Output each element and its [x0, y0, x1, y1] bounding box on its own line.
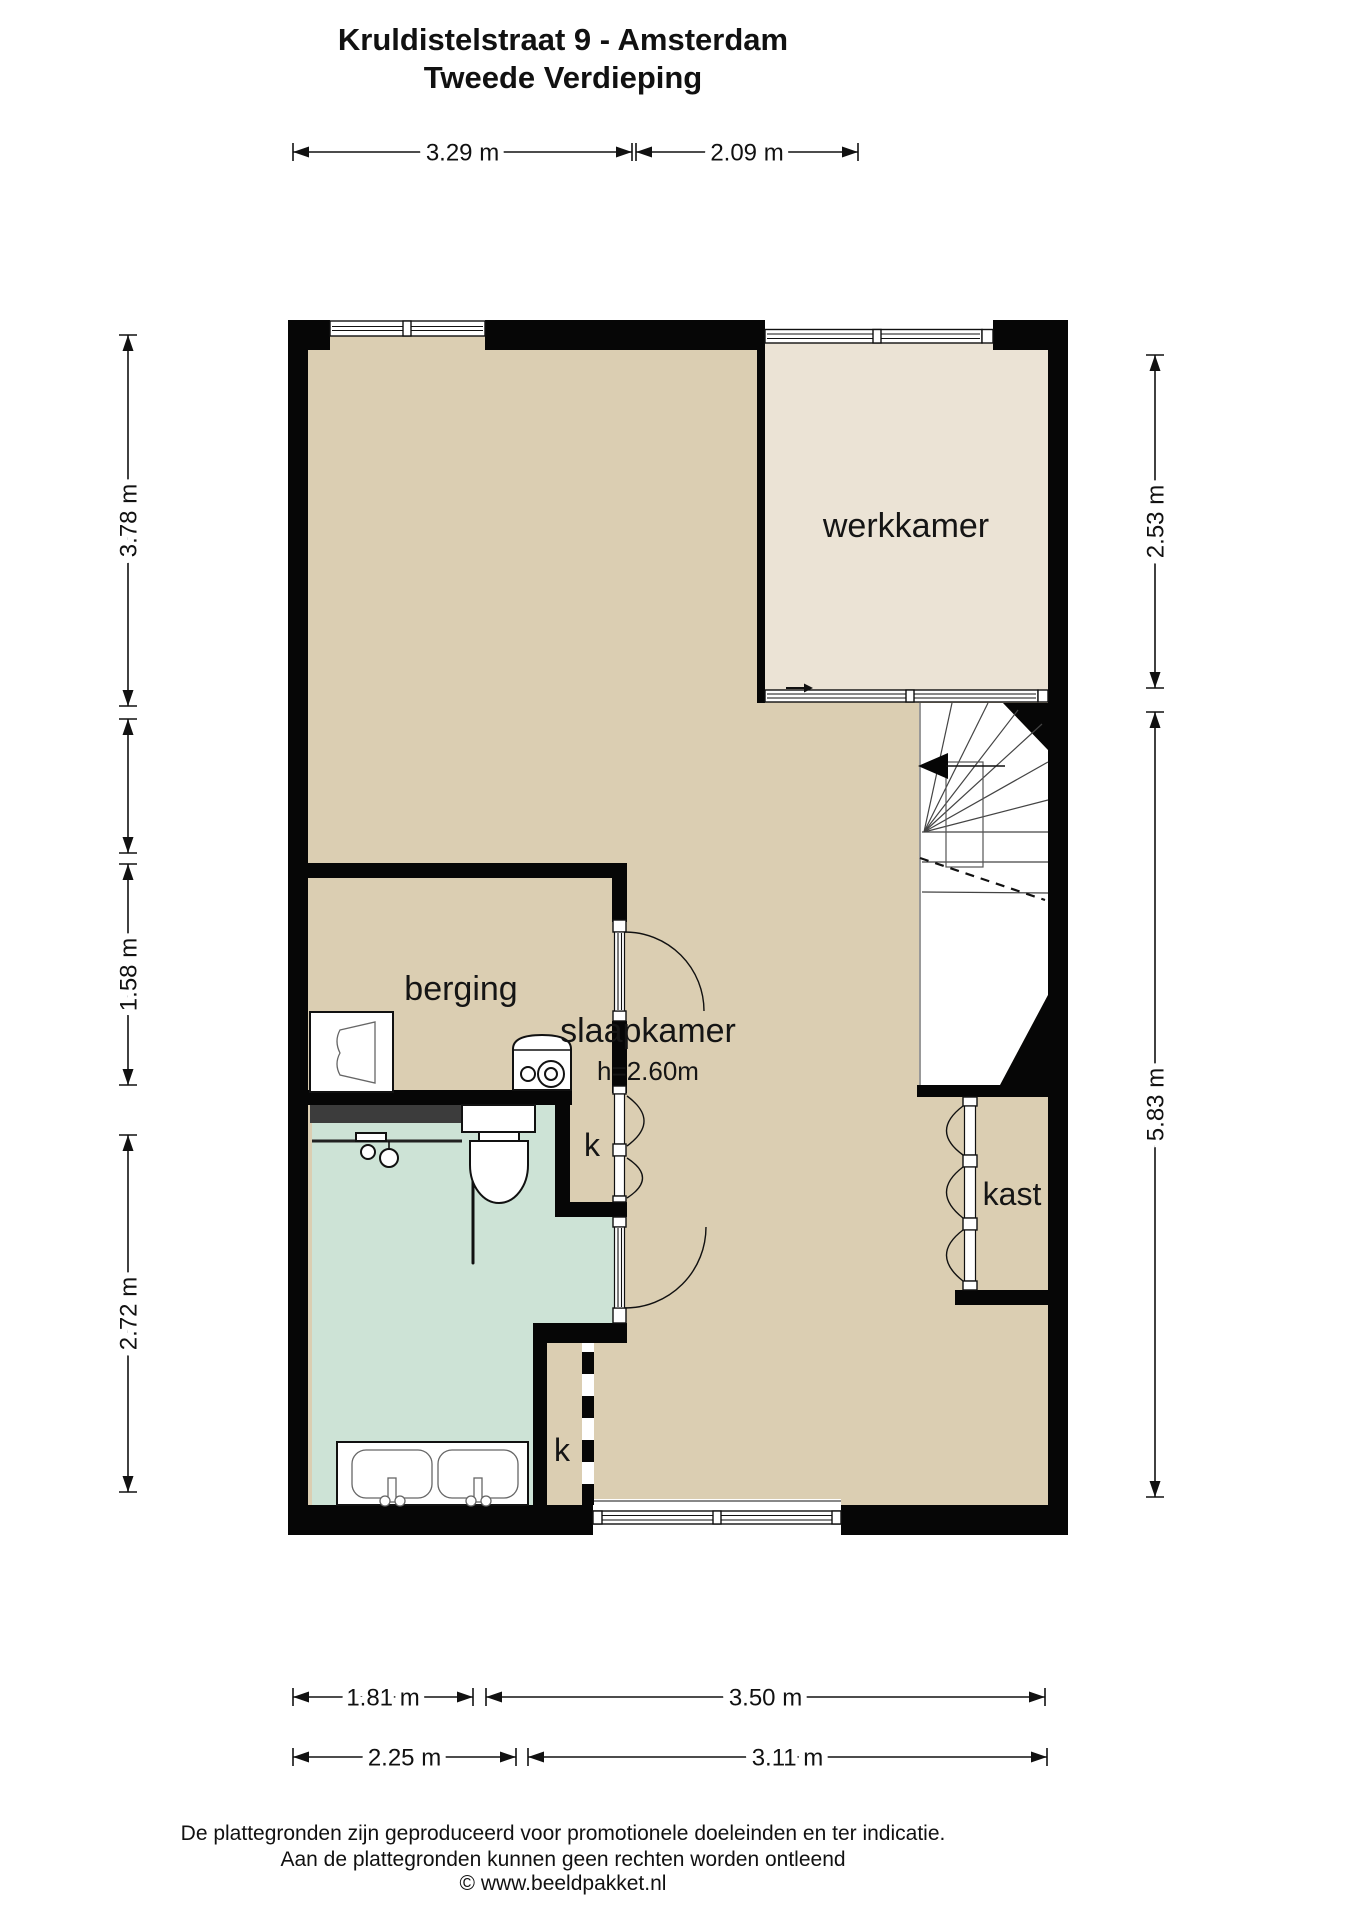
page-subtitle: Tweede Verdieping	[424, 60, 703, 95]
dim-label: 5.83 m	[1143, 1068, 1170, 1141]
dimension: 1.81 m	[293, 1685, 473, 1712]
footer-disclaimer-1: De plattegronden zijn geproduceerd voor …	[181, 1822, 946, 1845]
dimension: 3.78 m	[116, 335, 143, 706]
dim-label: 3.29 m	[426, 140, 499, 167]
dimension: 2.09 m	[636, 140, 858, 167]
dim-label: 2.53 m	[1143, 485, 1170, 558]
room-label-slaapkamer-height: h=2.60m	[597, 1056, 699, 1086]
dimension: 2.72 m	[116, 1135, 143, 1492]
dimension: 3.50 m	[486, 1685, 1045, 1712]
window-werkkamer-top-icon	[765, 330, 993, 344]
floorplan-canvas: Kruldistelstraat 9 - Amsterdam Tweede Ve…	[0, 0, 1358, 1920]
vent-unit-icon	[310, 1012, 393, 1092]
dim-label: 2.09 m	[710, 140, 783, 167]
footer-copyright: © www.beeldpakket.nl	[460, 1872, 667, 1895]
room-label-kast: kast	[983, 1176, 1042, 1212]
dimension: 2.53 m	[1143, 355, 1170, 688]
room-label-werkkamer: werkkamer	[822, 507, 989, 545]
room-label-berging: berging	[404, 970, 517, 1008]
dim-label: 1.81 m	[346, 1685, 419, 1712]
dimension: 1.58 m	[116, 864, 143, 1085]
vanity-icon	[337, 1442, 528, 1506]
dimension	[119, 719, 137, 853]
dimension: 2.25 m	[293, 1745, 516, 1772]
page-title: Kruldistelstraat 9 - Amsterdam	[338, 22, 788, 57]
dimension: 3.11 m	[528, 1745, 1047, 1772]
room-label-closet-k1: k	[584, 1127, 601, 1163]
room-label-slaapkamer: slaapkamer	[560, 1012, 736, 1050]
closet-k2-dashed-divider	[582, 1343, 594, 1505]
dim-label: 2.25 m	[368, 1745, 441, 1772]
dimension: 3.29 m	[293, 140, 632, 167]
dim-label: 2.72 m	[116, 1277, 143, 1350]
dim-label: 3.50 m	[729, 1685, 802, 1712]
dim-label: 3.11 m	[752, 1745, 824, 1772]
window-top-left-icon	[330, 321, 485, 336]
dimension: 5.83 m	[1143, 712, 1170, 1497]
window-werkkamer-bottom-icon	[765, 690, 1048, 702]
dim-label: 1.58 m	[116, 938, 143, 1011]
window-bottom-icon	[593, 1499, 841, 1524]
room-label-closet-k2: k	[554, 1432, 571, 1468]
footer-disclaimer-2: Aan de plattegronden kunnen geen rechten…	[280, 1848, 845, 1871]
dim-label: 3.78 m	[116, 484, 143, 557]
